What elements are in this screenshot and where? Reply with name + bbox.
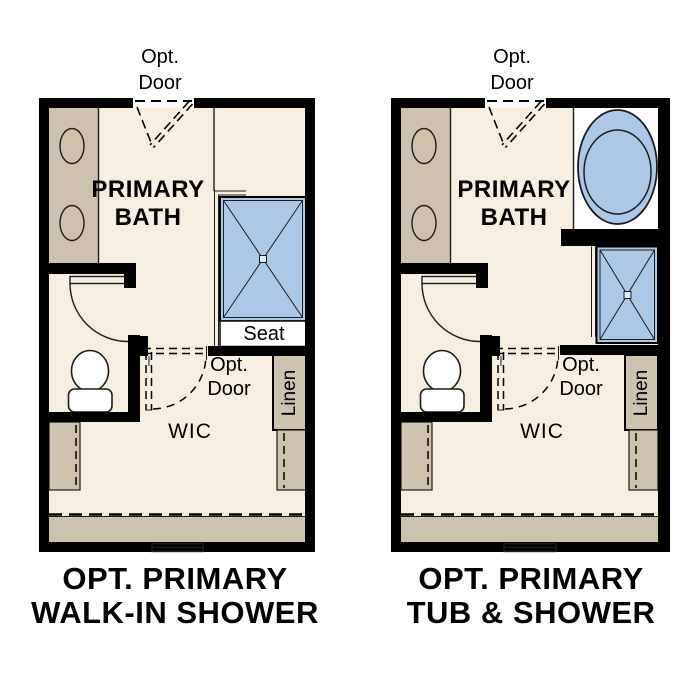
tub-icon xyxy=(578,110,657,224)
opt-door-label-line2: Door xyxy=(138,70,181,96)
room-label-line1: PRIMARY xyxy=(457,176,570,204)
primary-bath-label: PRIMARY BATH xyxy=(91,176,204,232)
vanity-counter xyxy=(401,108,451,263)
room-label-line1: PRIMARY xyxy=(91,176,204,204)
shower-icon xyxy=(597,247,659,344)
room-label-line2: BATH xyxy=(91,204,204,232)
floorplan-canvas: Opt. Door PRIMARY BATH Seat Opt. Door WI… xyxy=(0,0,687,687)
linen-label: Linen xyxy=(279,369,301,416)
plan-title: OPT. PRIMARY WALK-IN SHOWER xyxy=(31,562,319,630)
flooring-strip xyxy=(401,516,658,542)
opt-door-label-line2: Door xyxy=(207,377,250,401)
room-label-line2: BATH xyxy=(457,204,570,232)
opt-door-label-wic: Opt. Door xyxy=(559,353,602,401)
opt-door-label-line2: Door xyxy=(559,377,602,401)
plan-title: OPT. PRIMARY TUB & SHOWER xyxy=(407,562,656,630)
opt-door-label-line2: Door xyxy=(490,70,533,96)
opt-door-label-line1: Opt. xyxy=(559,353,602,377)
seat-label: Seat xyxy=(243,323,284,346)
opt-door-label-line1: Opt. xyxy=(490,44,533,70)
toilet-icon xyxy=(69,351,113,413)
opt-door-label-top: Opt. Door xyxy=(138,44,181,96)
plan-title-line2: WALK-IN SHOWER xyxy=(31,596,319,630)
shower-drain-icon xyxy=(624,292,631,299)
shower-drain-icon xyxy=(260,256,267,263)
opt-door-label-top: Opt. Door xyxy=(490,44,533,96)
plan-title-line1: OPT. PRIMARY xyxy=(31,562,319,596)
flooring-strip xyxy=(49,516,305,542)
wic-label: WIC xyxy=(520,420,564,444)
toilet-icon xyxy=(421,351,465,413)
linen-label: Linen xyxy=(631,369,653,416)
primary-bath-label: PRIMARY BATH xyxy=(457,176,570,232)
plan-title-line2: TUB & SHOWER xyxy=(407,596,656,630)
closet-shelf xyxy=(629,430,658,490)
opt-door-label-line1: Opt. xyxy=(207,353,250,377)
opt-door-label-wic: Opt. Door xyxy=(207,353,250,401)
opt-door-label-line1: Opt. xyxy=(138,44,181,70)
closet-shelf xyxy=(277,430,306,490)
plan-title-line1: OPT. PRIMARY xyxy=(407,562,656,596)
wic-label: WIC xyxy=(168,420,212,444)
right-plan xyxy=(391,98,670,552)
